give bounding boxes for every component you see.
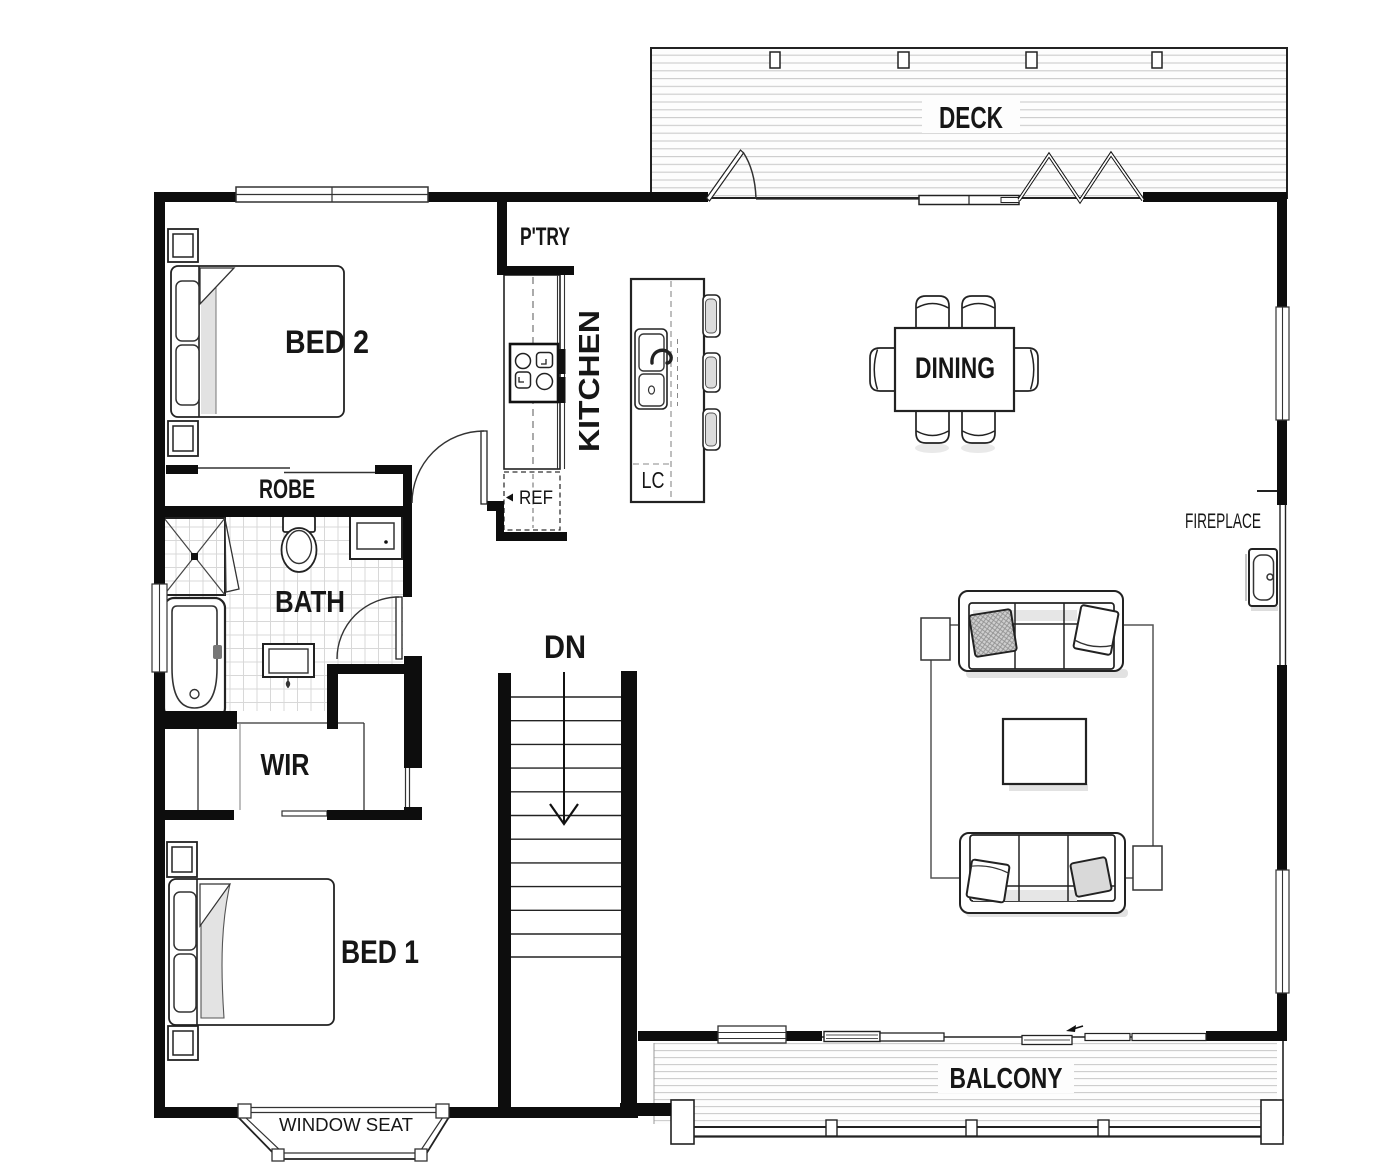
svg-text:BED 1: BED 1 bbox=[341, 934, 419, 970]
svg-text:P'TRY: P'TRY bbox=[520, 223, 570, 251]
svg-text:LC: LC bbox=[642, 467, 665, 493]
svg-text:DN: DN bbox=[544, 629, 586, 665]
svg-text:BATH: BATH bbox=[275, 584, 345, 619]
svg-text:FIREPLACE: FIREPLACE bbox=[1185, 510, 1261, 533]
svg-text:WIR: WIR bbox=[261, 747, 310, 782]
svg-text:BED 2: BED 2 bbox=[285, 324, 369, 360]
svg-text:DINING: DINING bbox=[915, 352, 995, 385]
svg-text:KITCHEN: KITCHEN bbox=[574, 310, 606, 452]
svg-text:DECK: DECK bbox=[939, 100, 1003, 135]
svg-text:WINDOW SEAT: WINDOW SEAT bbox=[279, 1115, 413, 1135]
svg-text:REF: REF bbox=[519, 488, 553, 509]
svg-text:BALCONY: BALCONY bbox=[950, 1063, 1063, 1095]
svg-text:ROBE: ROBE bbox=[259, 474, 315, 504]
